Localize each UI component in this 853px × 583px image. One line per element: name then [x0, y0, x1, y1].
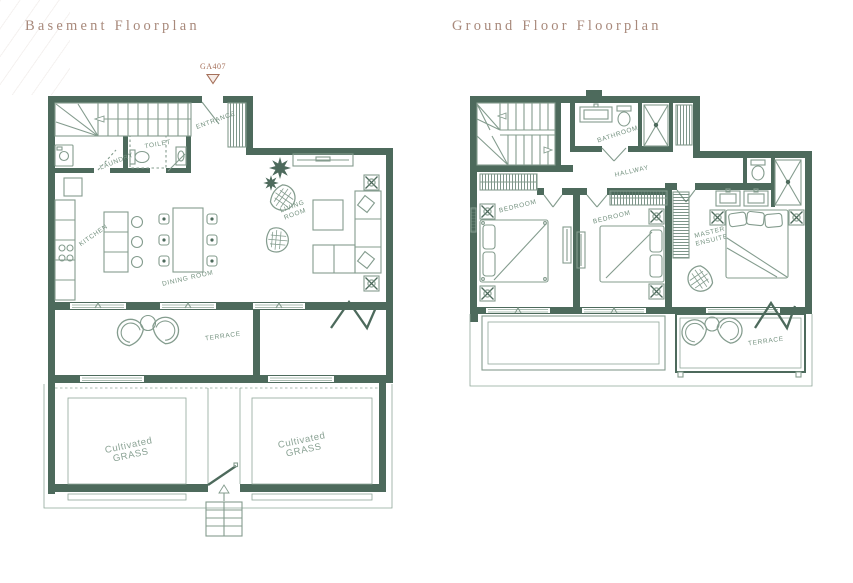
basement-title: Basement Floorplan	[25, 18, 200, 35]
ground-floor-title: Ground Floor Floorplan	[452, 18, 662, 35]
down-arrow-icon	[205, 73, 221, 85]
garden-steps	[206, 485, 242, 536]
ga407-label: GA407	[190, 62, 236, 71]
ground-floorplan-drawing	[460, 88, 825, 398]
corner-decoration	[0, 0, 70, 95]
kitchen-fixtures	[55, 178, 143, 300]
ground-floorplan: BATHROOM HALLWAY BEDROOM BEDROOM MASTER …	[460, 88, 825, 398]
roof-outline	[470, 314, 812, 386]
floorplan-page: Basement Floorplan Ground Floor Floorpla…	[0, 0, 853, 583]
basement-floorplan: ENTRANCE LAUNDRY TOILET KITCHEN DINING R…	[40, 88, 400, 550]
ground-staircase	[477, 103, 555, 165]
dining-furniture	[159, 208, 217, 272]
basement-floorplan-drawing	[40, 88, 400, 550]
ga407-marker: GA407	[190, 62, 236, 85]
bedroom-middle-furniture	[600, 191, 667, 299]
